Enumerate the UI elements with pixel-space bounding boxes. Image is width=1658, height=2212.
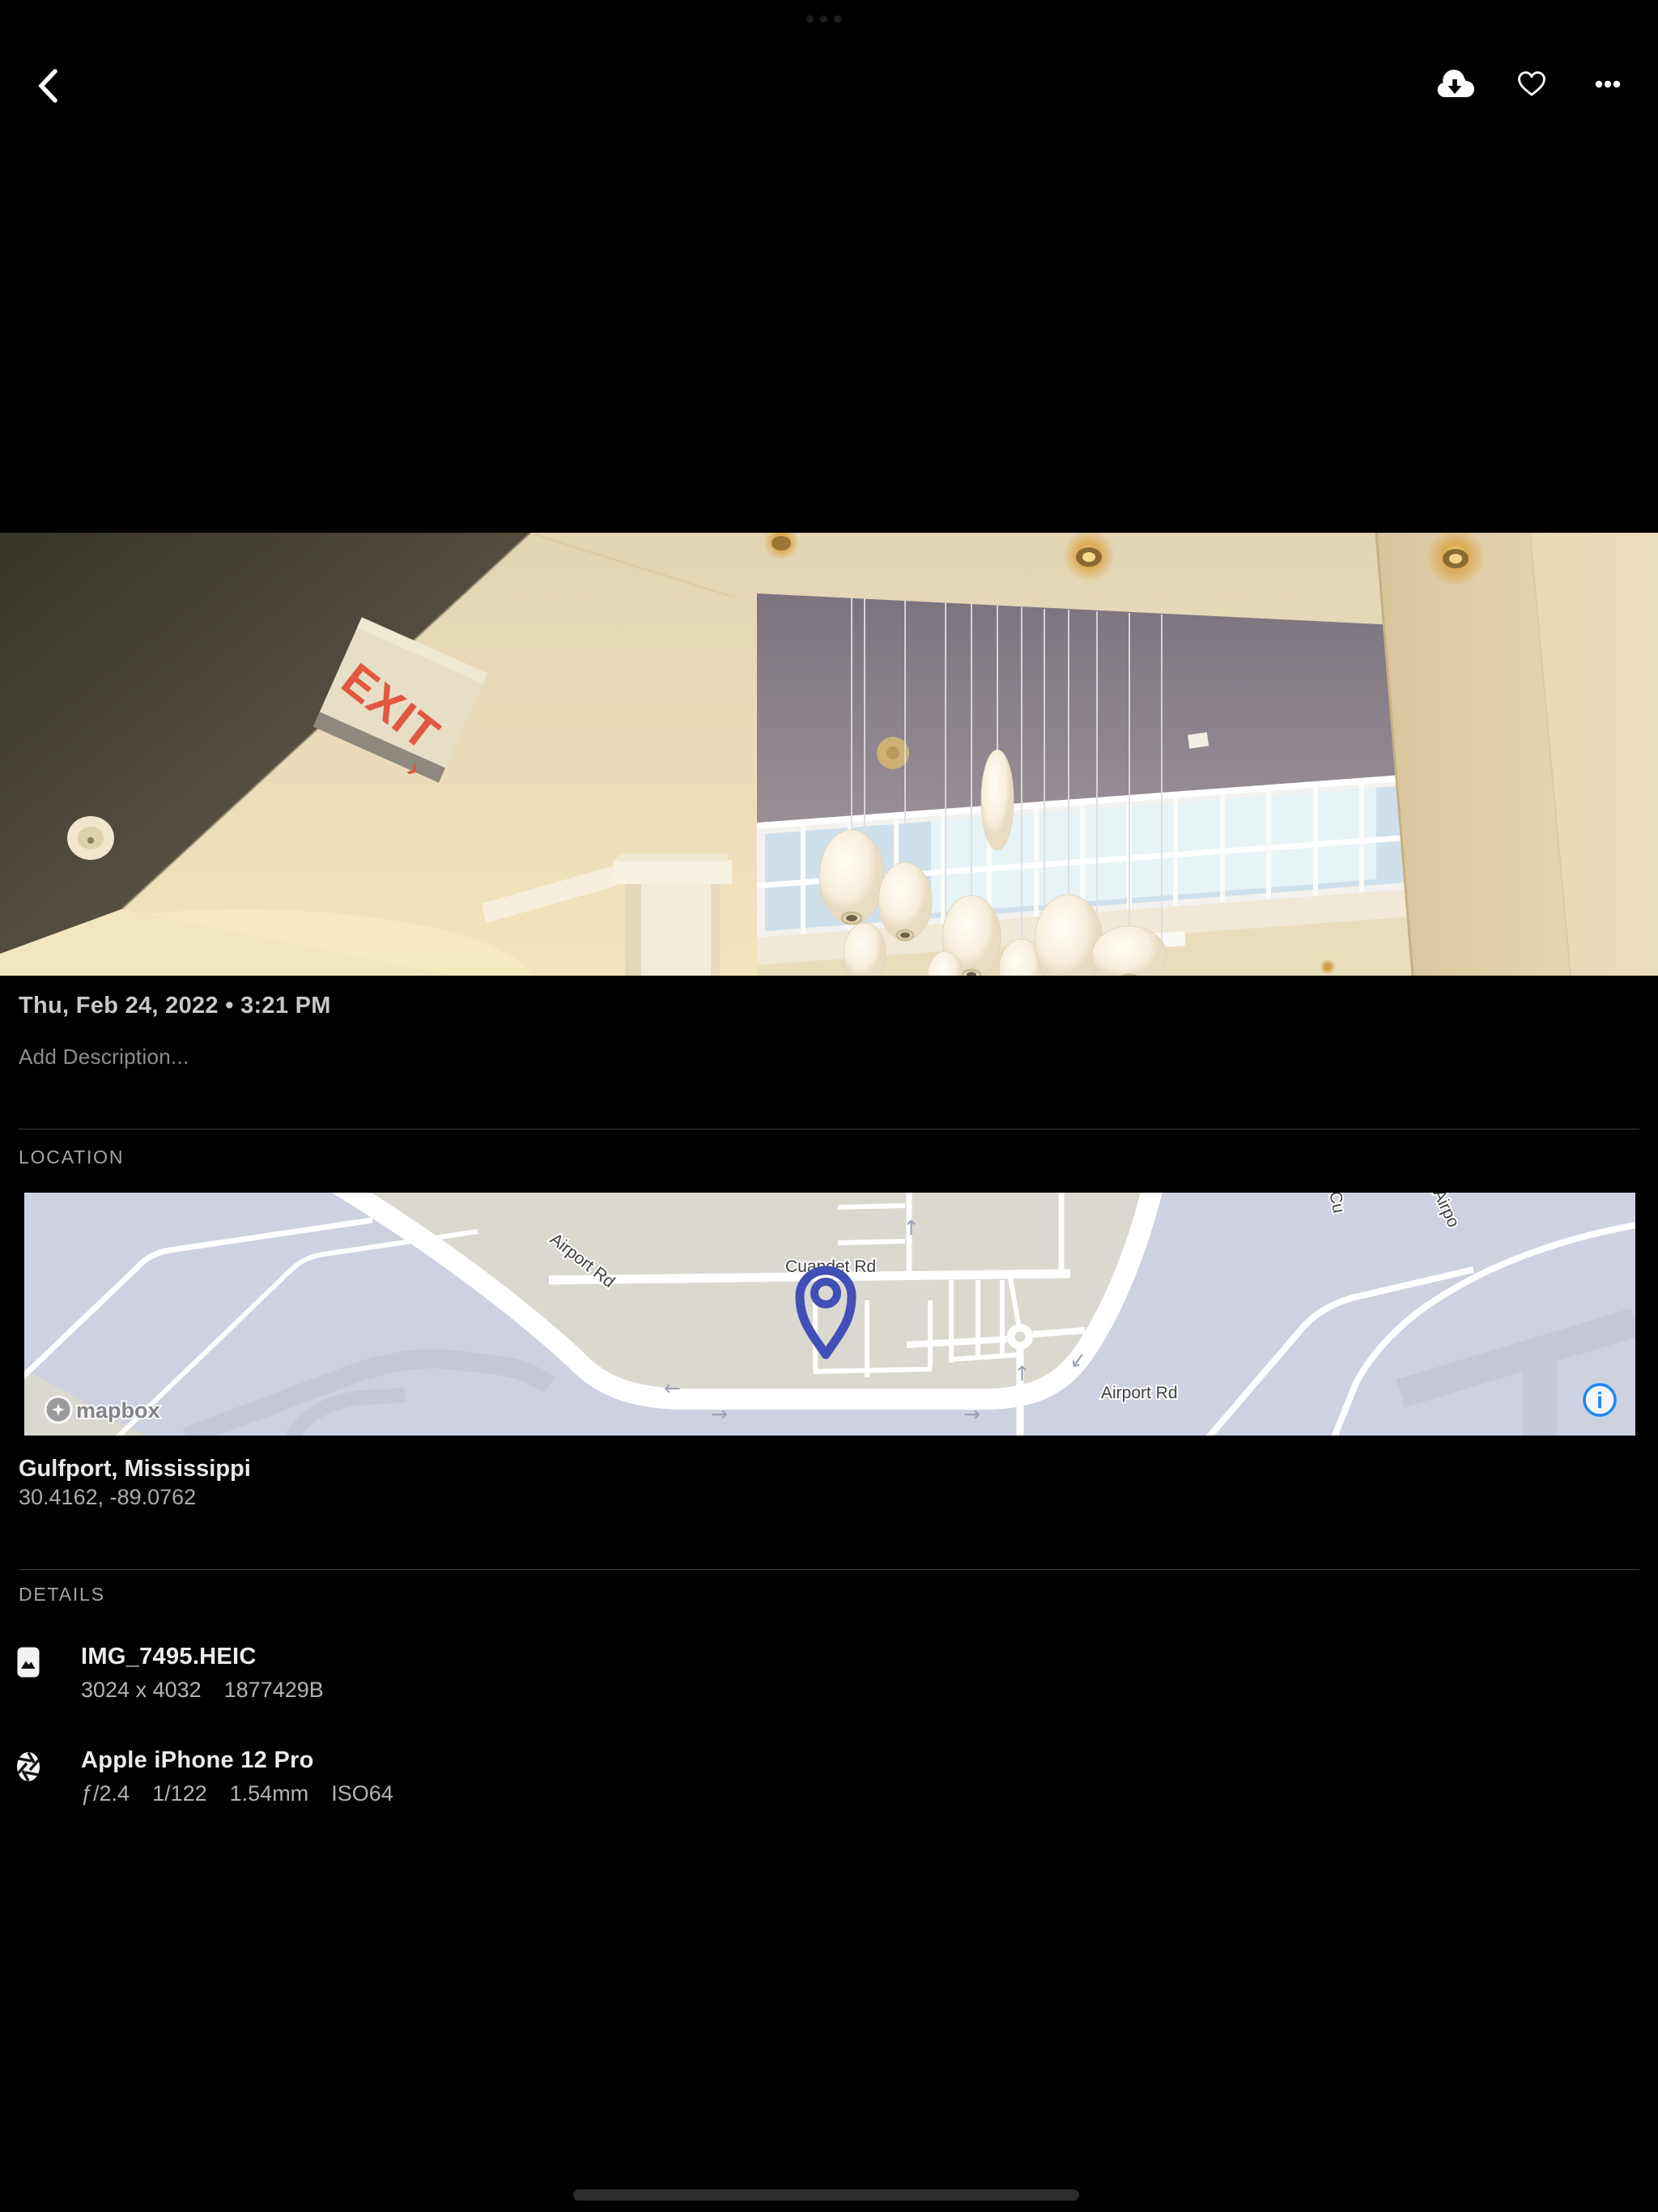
file-name: IMG_7495.HEIC <box>81 1644 257 1670</box>
svg-text:↑: ↑ <box>1014 1362 1031 1385</box>
aperture-icon <box>16 1750 40 1789</box>
svg-text:←: ← <box>664 1376 681 1400</box>
map-info-button[interactable]: i <box>1584 1385 1615 1415</box>
svg-text:→: → <box>711 1402 728 1426</box>
file-dimensions: 3024 x 4032 <box>81 1678 202 1702</box>
more-button[interactable] <box>1588 76 1627 95</box>
svg-text:↑: ↑ <box>903 1216 920 1240</box>
mapbox-logo-text: mapbox <box>76 1398 160 1423</box>
info-icon: i <box>1596 1388 1603 1413</box>
smoke-detector <box>67 816 114 860</box>
exif-focal: 1.54mm <box>230 1781 309 1806</box>
home-indicator[interactable] <box>573 2189 1079 2201</box>
exif-aperture: ƒ/2.4 <box>81 1781 130 1806</box>
camera-exif: ƒ/2.41/1221.54mmISO64 <box>81 1781 416 1806</box>
photo-datetime: Thu, Feb 24, 2022 • 3:21 PM <box>19 993 331 1019</box>
atrium <box>757 593 1413 976</box>
svg-text:→: → <box>963 1402 980 1426</box>
exif-iso: ISO64 <box>331 1781 393 1806</box>
favorite-button[interactable] <box>1516 70 1547 101</box>
download-button[interactable] <box>1434 70 1476 104</box>
image-file-icon <box>17 1647 40 1682</box>
exif-shutter: 1/122 <box>152 1781 207 1806</box>
location-coordinates: 30.4162, -89.0762 <box>19 1485 196 1510</box>
mapbox-attribution[interactable]: mapbox <box>45 1397 160 1423</box>
heart-icon <box>1516 89 1547 101</box>
chevron-left-icon <box>34 96 65 108</box>
ellipsis-icon <box>1588 83 1627 95</box>
camera-name: Apple iPhone 12 Pro <box>81 1747 314 1774</box>
divider <box>19 1569 1639 1570</box>
divider <box>19 1129 1639 1129</box>
location-section-label: LOCATION <box>19 1146 124 1168</box>
cloud-download-icon <box>1434 92 1476 104</box>
location-place: Gulfport, Mississippi <box>19 1456 251 1482</box>
back-button[interactable] <box>34 66 65 108</box>
location-map[interactable]: ← → ↑ → ↑ ↓ Cuandet Rd Airport Rd Airpor… <box>24 1193 1635 1436</box>
file-size: 1877429B <box>224 1678 324 1702</box>
details-section-label: DETAILS <box>19 1584 105 1606</box>
road-label-airport-horizontal: Airport Rd <box>1101 1384 1178 1402</box>
file-meta: 3024 x 40321877429B <box>81 1678 346 1703</box>
photo-image: EXIT › <box>0 533 1658 976</box>
multitask-dots <box>806 15 841 23</box>
description-input[interactable]: Add Description... <box>19 1044 189 1070</box>
photo-viewer[interactable]: EXIT › <box>0 533 1658 976</box>
